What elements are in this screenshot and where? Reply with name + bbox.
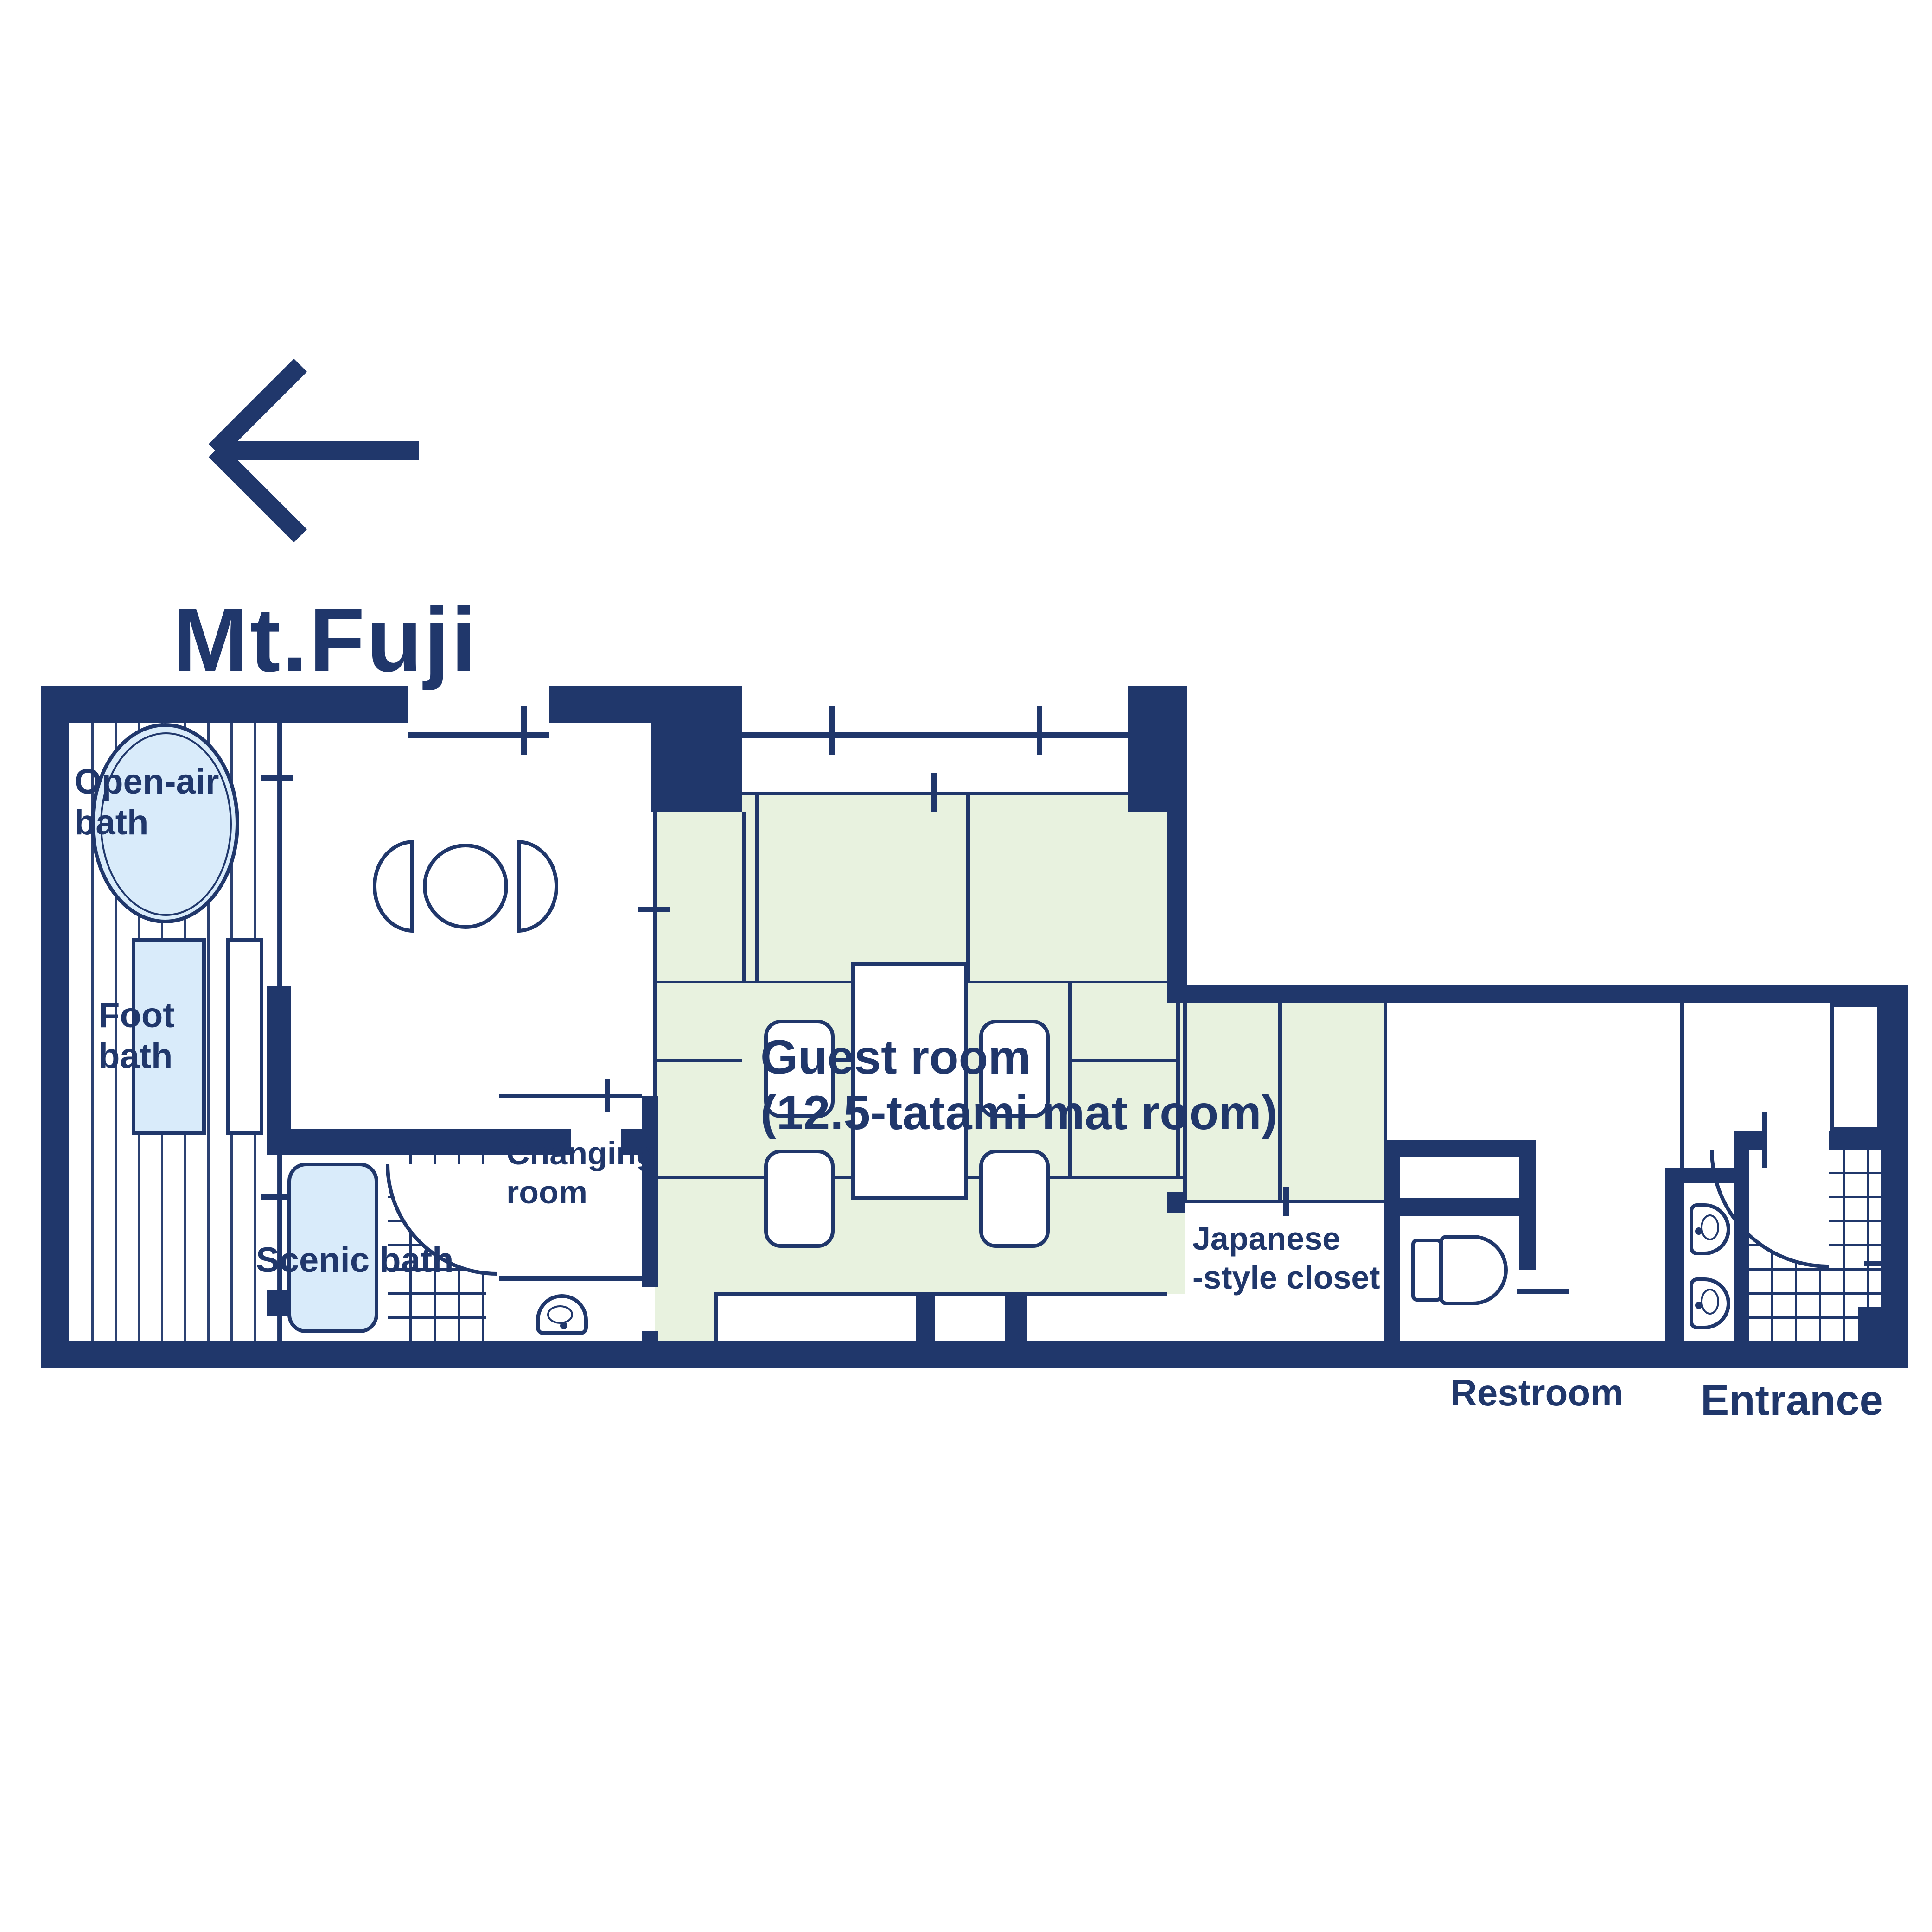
round-table xyxy=(423,844,508,929)
window-tick xyxy=(931,773,936,812)
entrance-cupboard xyxy=(1830,1003,1881,1131)
wall xyxy=(1384,1140,1400,1340)
toilet-bowl xyxy=(1439,1235,1508,1305)
wall-pier xyxy=(1128,686,1171,812)
label-line: -style closet xyxy=(1192,1258,1380,1296)
entrance-door-arc-icon xyxy=(1710,1150,1829,1268)
washbasin-bowl xyxy=(1701,1214,1719,1240)
deck-bench xyxy=(226,938,263,1135)
tatami-edge xyxy=(713,1293,717,1340)
tatami-area xyxy=(654,812,1167,986)
tatami-joint xyxy=(654,1059,742,1062)
wall xyxy=(1734,1131,1762,1150)
label-line: Guest room xyxy=(760,1029,1031,1085)
wall xyxy=(1167,686,1187,985)
wall-pier xyxy=(651,686,742,812)
entrance-label: Entrance xyxy=(1701,1376,1883,1426)
wall xyxy=(1665,1168,1684,1340)
floor-plan-canvas: Mt.Fuji xyxy=(0,0,1932,1932)
partition-line xyxy=(499,1276,642,1280)
tatami-joint xyxy=(1278,1002,1281,1199)
wall xyxy=(41,686,408,722)
wall xyxy=(1384,1198,1536,1216)
changing-room-label: Changing room xyxy=(506,1135,656,1211)
chair-icon xyxy=(764,1150,835,1248)
toilet-tank xyxy=(1411,1239,1443,1302)
washbasin-bowl xyxy=(547,1305,573,1324)
scenic-bath-label: Scenic bath xyxy=(256,1242,454,1284)
wall xyxy=(642,1330,658,1340)
door-tick xyxy=(638,907,670,911)
wall xyxy=(1384,1140,1536,1157)
door-tick xyxy=(605,1079,609,1112)
door-tick xyxy=(1517,1289,1569,1293)
window-tick xyxy=(829,706,834,755)
wall xyxy=(1519,1140,1536,1270)
foot-bath-label: Foot bath xyxy=(98,998,175,1080)
tatami-joint xyxy=(755,794,758,980)
label-line: Changing xyxy=(506,1135,656,1172)
label-line: bath xyxy=(98,1039,172,1078)
window-line xyxy=(408,732,548,737)
wall-stub xyxy=(1167,1192,1185,1213)
wall-stub xyxy=(1858,1307,1881,1340)
window-tick xyxy=(1037,706,1041,755)
label-line: room xyxy=(506,1173,587,1210)
wall-stub xyxy=(916,1293,934,1340)
washbasin-faucet xyxy=(560,1322,567,1329)
label-line: Foot xyxy=(98,998,175,1036)
restroom-label: Restroom xyxy=(1450,1374,1623,1417)
tatami-area xyxy=(654,1293,714,1340)
door-tick xyxy=(1864,1261,1908,1265)
sliding-door-line xyxy=(653,812,657,1129)
door-tick xyxy=(1762,1112,1766,1168)
washbasin-icon xyxy=(1690,1277,1730,1329)
half-round-chair-icon xyxy=(517,840,558,933)
wall xyxy=(266,985,290,1141)
closet-door-tick xyxy=(1283,1187,1288,1216)
guest-room-label: Guest room (12.5-tatami mat room) xyxy=(760,1031,1277,1142)
direction-label: Mt.Fuji xyxy=(172,590,478,697)
open-air-bath-label: Open-air bath xyxy=(74,764,219,847)
washbasin-icon xyxy=(1690,1203,1730,1255)
wall xyxy=(1665,1168,1734,1183)
label-line: (12.5-tatami mat room) xyxy=(760,1085,1277,1140)
wall xyxy=(1167,984,1908,1002)
opening-line xyxy=(499,1094,642,1098)
half-round-chair-icon xyxy=(373,840,414,933)
wall xyxy=(41,1340,1908,1367)
washbasin-icon xyxy=(536,1294,588,1335)
chair-icon xyxy=(979,1150,1050,1248)
wall-stub xyxy=(267,1290,289,1316)
partition-line xyxy=(1680,1002,1684,1168)
washbasin-faucet xyxy=(1695,1227,1702,1235)
washbasin-faucet xyxy=(1695,1302,1702,1309)
wall xyxy=(548,686,651,722)
label-line: Open-air xyxy=(74,764,219,803)
tatami-joint xyxy=(742,812,745,980)
washbasin-bowl xyxy=(1701,1289,1719,1315)
tatami-edge xyxy=(714,1291,1167,1295)
wall xyxy=(41,686,69,1367)
window-tick xyxy=(521,706,526,755)
window-tick xyxy=(261,775,293,780)
closet-label: Japanese -style closet xyxy=(1192,1220,1380,1296)
label-line: Japanese xyxy=(1192,1220,1340,1257)
window-line xyxy=(742,732,1128,737)
wall-stub xyxy=(1005,1293,1027,1340)
wall xyxy=(1734,1150,1749,1340)
wall xyxy=(1881,984,1908,1367)
arrow-left-icon xyxy=(200,349,432,553)
wall xyxy=(1829,1131,1881,1150)
label-line: bath xyxy=(74,806,148,845)
tatami-joint xyxy=(966,794,969,980)
deck-boundary xyxy=(277,722,281,985)
